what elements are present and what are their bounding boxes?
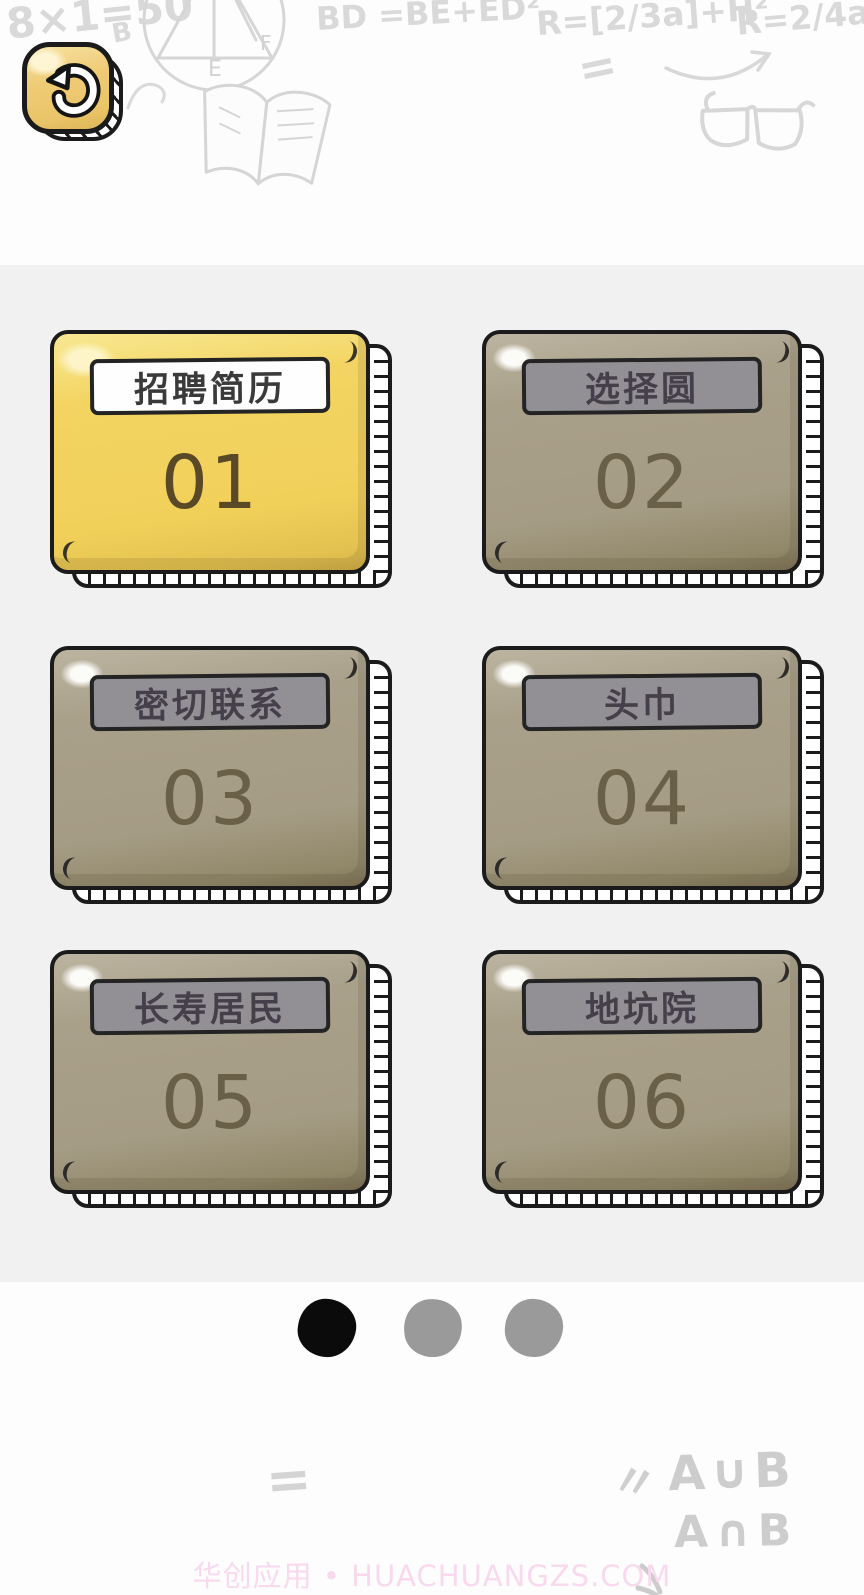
level-card-04[interactable]: 头巾 04 bbox=[482, 646, 830, 908]
svg-text:F: F bbox=[260, 31, 272, 55]
level-number: 06 bbox=[486, 1066, 798, 1140]
level-name-badge: 头巾 bbox=[522, 673, 763, 732]
card-face: 密切联系 03 bbox=[50, 646, 370, 890]
level-number: 02 bbox=[486, 446, 798, 520]
book-doodle bbox=[182, 72, 344, 205]
page-indicator bbox=[0, 1299, 864, 1359]
doodle-equals-bottom: = bbox=[264, 1446, 314, 1512]
level-name: 招聘简历 bbox=[134, 360, 287, 413]
page-dot-2[interactable] bbox=[401, 1296, 465, 1360]
level-card-01[interactable]: 招聘简历 01 bbox=[50, 330, 398, 592]
level-card-05[interactable]: 长寿居民 05 bbox=[50, 950, 398, 1212]
level-number: 03 bbox=[54, 762, 366, 836]
level-card-03[interactable]: 密切联系 03 bbox=[50, 646, 398, 908]
doodle-set-union: A∪B bbox=[667, 1442, 797, 1502]
card-face: 头巾 04 bbox=[482, 646, 802, 890]
card-face: 地坑院 06 bbox=[482, 950, 802, 1194]
level-name-badge: 密切联系 bbox=[90, 673, 331, 732]
doodle-set-intersection: A∩B bbox=[674, 1505, 799, 1558]
level-number: 01 bbox=[54, 446, 366, 520]
level-select-screen: 8×1=50 B E F BD =BE+ED² R=[2/3a]+H² R=2/… bbox=[0, 0, 864, 1595]
back-button[interactable] bbox=[22, 42, 126, 146]
level-number: 05 bbox=[54, 1066, 366, 1140]
level-card-06[interactable]: 地坑院 06 bbox=[482, 950, 830, 1212]
card-face: 长寿居民 05 bbox=[50, 950, 370, 1194]
undo-arrow-icon bbox=[30, 50, 106, 126]
page-dot-1[interactable] bbox=[294, 1295, 360, 1361]
page-dot-3[interactable] bbox=[503, 1297, 565, 1359]
doodle-equals-top: = bbox=[573, 37, 622, 98]
card-face: 选择圆 02 bbox=[482, 330, 802, 574]
doodle-quote-marks: 〃 bbox=[607, 1443, 664, 1516]
level-name: 选择圆 bbox=[585, 360, 700, 412]
page-curl-doodle bbox=[124, 72, 170, 114]
level-card-02[interactable]: 选择圆 02 bbox=[482, 330, 830, 592]
level-name-badge: 地坑院 bbox=[522, 977, 763, 1036]
doodle-formula-bd: BD =BE+ED² bbox=[315, 0, 541, 38]
level-name-badge: 长寿居民 bbox=[90, 977, 331, 1036]
level-number: 04 bbox=[486, 762, 798, 836]
level-name: 长寿居民 bbox=[134, 980, 287, 1033]
watermark-text: 华创应用 • HUACHUANGZS.COM bbox=[0, 1553, 864, 1595]
doodle-formula-r2: R=2/4a bbox=[735, 0, 864, 43]
level-name-badge: 选择圆 bbox=[522, 357, 763, 416]
level-name: 地坑院 bbox=[585, 980, 700, 1032]
card-face: 招聘简历 01 bbox=[50, 330, 370, 574]
level-name: 头巾 bbox=[604, 676, 681, 728]
glasses-doodle bbox=[686, 80, 818, 188]
level-name-badge: 招聘简历 bbox=[90, 357, 331, 416]
level-name: 密切联系 bbox=[134, 676, 287, 729]
